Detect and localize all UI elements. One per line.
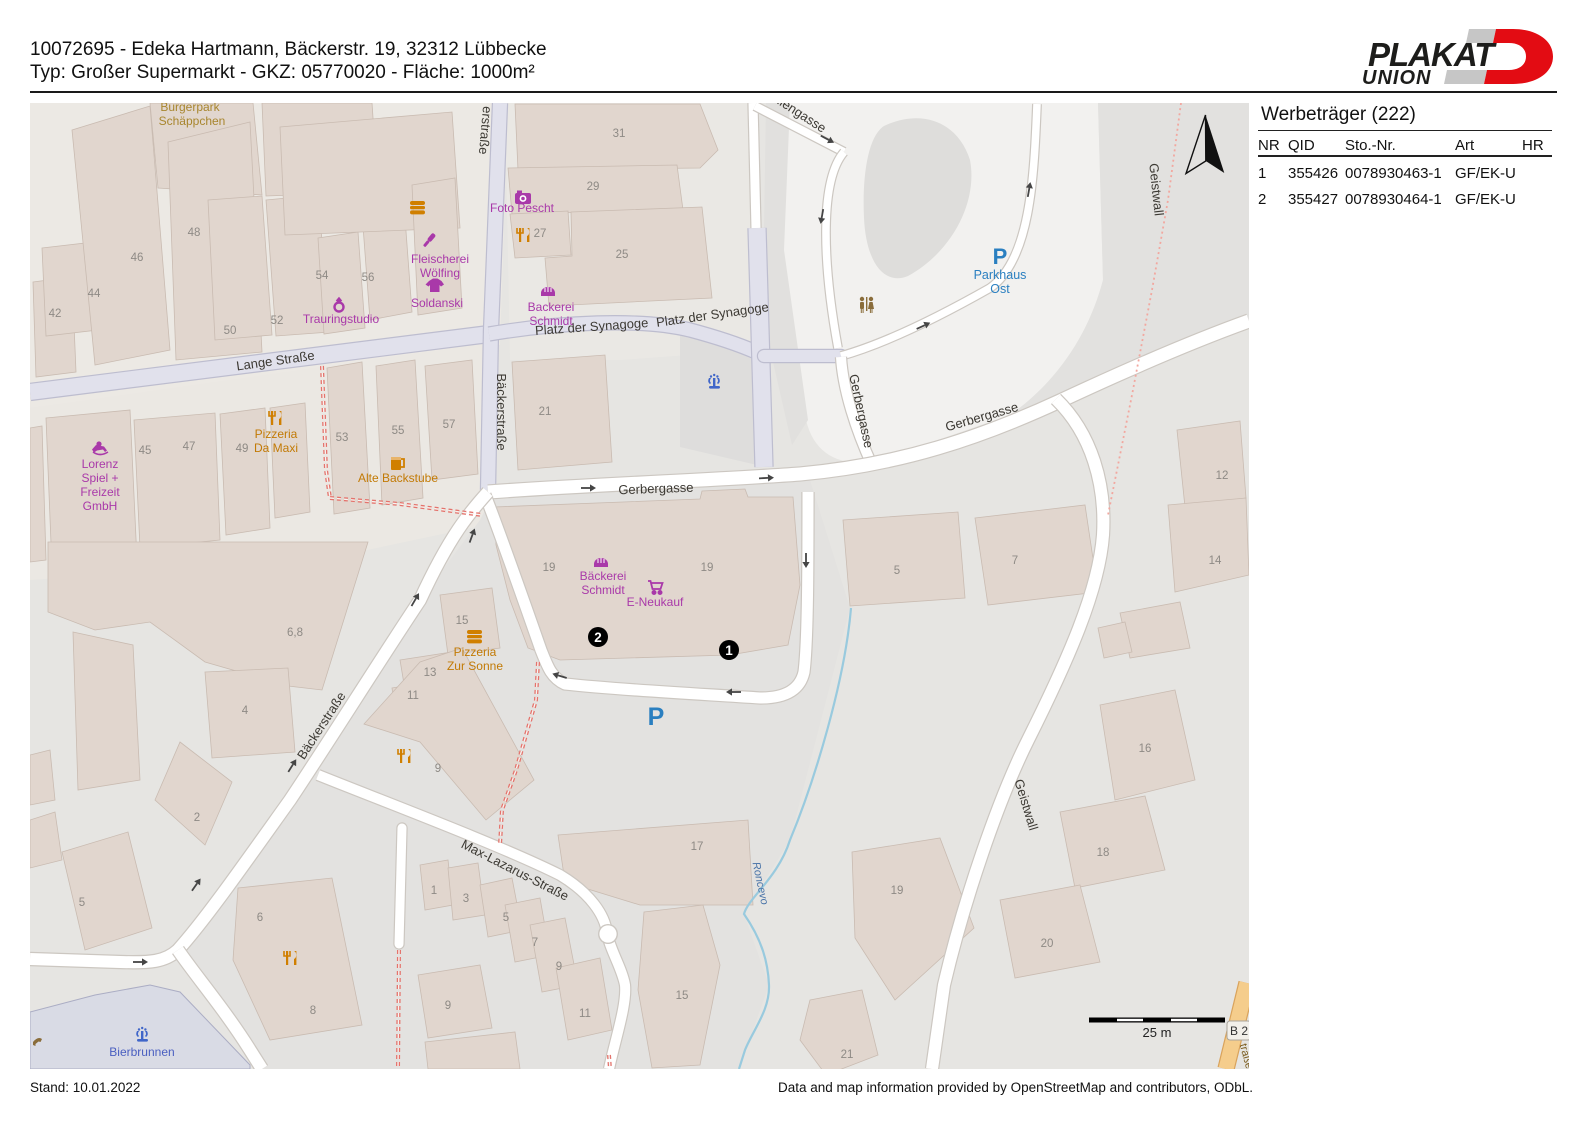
svg-text:17: 17 [691, 841, 704, 853]
svg-text:Zur Sonne: Zur Sonne [447, 659, 503, 673]
svg-text:15: 15 [456, 615, 469, 627]
svg-text:GmbH: GmbH [83, 499, 118, 513]
svg-text:Lorenz: Lorenz [82, 457, 119, 471]
svg-text:42: 42 [49, 308, 62, 320]
svg-text:44: 44 [88, 288, 101, 300]
svg-text:B 2: B 2 [1230, 1024, 1248, 1038]
svg-text:Alte Backstube: Alte Backstube [358, 471, 438, 485]
svg-text:Da Maxi: Da Maxi [254, 441, 298, 455]
svg-text:Pizzeria: Pizzeria [255, 427, 298, 441]
svg-text:27: 27 [534, 228, 547, 240]
svg-text:Backerei: Backerei [528, 300, 575, 314]
svg-text:1: 1 [431, 885, 437, 897]
svg-text:9: 9 [445, 1000, 451, 1012]
svg-text:6: 6 [257, 912, 263, 924]
svg-text:18: 18 [1097, 847, 1110, 859]
svg-text:46: 46 [131, 252, 144, 264]
svg-text:E-Neukauf: E-Neukauf [627, 595, 684, 609]
svg-text:Soldanski: Soldanski [411, 296, 463, 310]
svg-text:29: 29 [587, 181, 600, 193]
svg-text:9: 9 [435, 763, 441, 775]
svg-text:19: 19 [543, 562, 556, 574]
svg-text:UNION: UNION [1362, 67, 1431, 89]
svg-text:49: 49 [236, 443, 249, 455]
svg-text:16: 16 [1139, 743, 1152, 755]
svg-text:2: 2 [594, 630, 602, 645]
svg-text:Pizzeria: Pizzeria [454, 645, 497, 659]
svg-text:21: 21 [841, 1049, 854, 1061]
svg-text:9: 9 [556, 961, 562, 973]
svg-text:54: 54 [316, 270, 329, 282]
svg-text:3: 3 [463, 893, 469, 905]
svg-text:Parkhaus: Parkhaus [974, 268, 1027, 282]
svg-text:Bäckerstraße: Bäckerstraße [494, 373, 509, 450]
svg-text:13: 13 [424, 667, 437, 679]
svg-text:57: 57 [443, 419, 456, 431]
svg-text:5: 5 [79, 897, 85, 909]
svg-text:45: 45 [139, 445, 152, 457]
svg-text:2: 2 [194, 812, 200, 824]
svg-text:P: P [648, 703, 665, 731]
svg-text:20: 20 [1041, 938, 1054, 950]
svg-text:Gerbergasse: Gerbergasse [618, 480, 694, 498]
svg-text:15: 15 [676, 990, 689, 1002]
svg-text:Schmidt: Schmidt [529, 314, 573, 328]
svg-text:53: 53 [336, 432, 349, 444]
svg-text:1: 1 [725, 643, 733, 658]
svg-text:Spiel +: Spiel + [81, 471, 118, 485]
svg-text:Trauringstudio: Trauringstudio [303, 312, 380, 326]
svg-text:Bäckerei: Bäckerei [580, 569, 627, 583]
svg-text:6,8: 6,8 [287, 627, 303, 639]
svg-text:5: 5 [503, 912, 509, 924]
svg-text:11: 11 [579, 1008, 591, 1020]
svg-text:Schmidt: Schmidt [581, 583, 625, 597]
svg-text:31: 31 [613, 128, 626, 140]
svg-text:52: 52 [271, 315, 284, 327]
svg-text:8: 8 [310, 1005, 316, 1017]
svg-text:25 m: 25 m [1143, 1025, 1172, 1040]
svg-text:11: 11 [407, 690, 419, 702]
svg-text:5: 5 [894, 565, 900, 577]
svg-text:Foto Pescht: Foto Pescht [490, 201, 555, 215]
svg-text:48: 48 [188, 227, 201, 239]
svg-text:P: P [993, 244, 1008, 269]
svg-text:56: 56 [362, 272, 375, 284]
svg-text:7: 7 [1012, 555, 1018, 567]
svg-text:Fleischerei: Fleischerei [411, 252, 469, 266]
svg-text:Ost: Ost [990, 282, 1010, 296]
svg-text:14: 14 [1209, 555, 1222, 567]
svg-text:19: 19 [891, 885, 904, 897]
svg-text:12: 12 [1216, 470, 1229, 482]
svg-text:47: 47 [183, 441, 196, 453]
svg-text:19: 19 [701, 562, 714, 574]
svg-text:4: 4 [242, 705, 249, 717]
svg-text:25: 25 [616, 249, 629, 261]
svg-text:Freizeit: Freizeit [80, 485, 120, 499]
svg-text:Wölfing: Wölfing [420, 266, 460, 280]
svg-text:Bierbrunnen: Bierbrunnen [109, 1045, 174, 1059]
svg-text:Schäppchen: Schäppchen [159, 114, 226, 128]
svg-text:21: 21 [539, 406, 552, 418]
svg-text:55: 55 [392, 425, 405, 437]
svg-text:7: 7 [532, 937, 538, 949]
svg-text:Burgerpark: Burgerpark [160, 103, 220, 114]
svg-text:50: 50 [224, 325, 237, 337]
